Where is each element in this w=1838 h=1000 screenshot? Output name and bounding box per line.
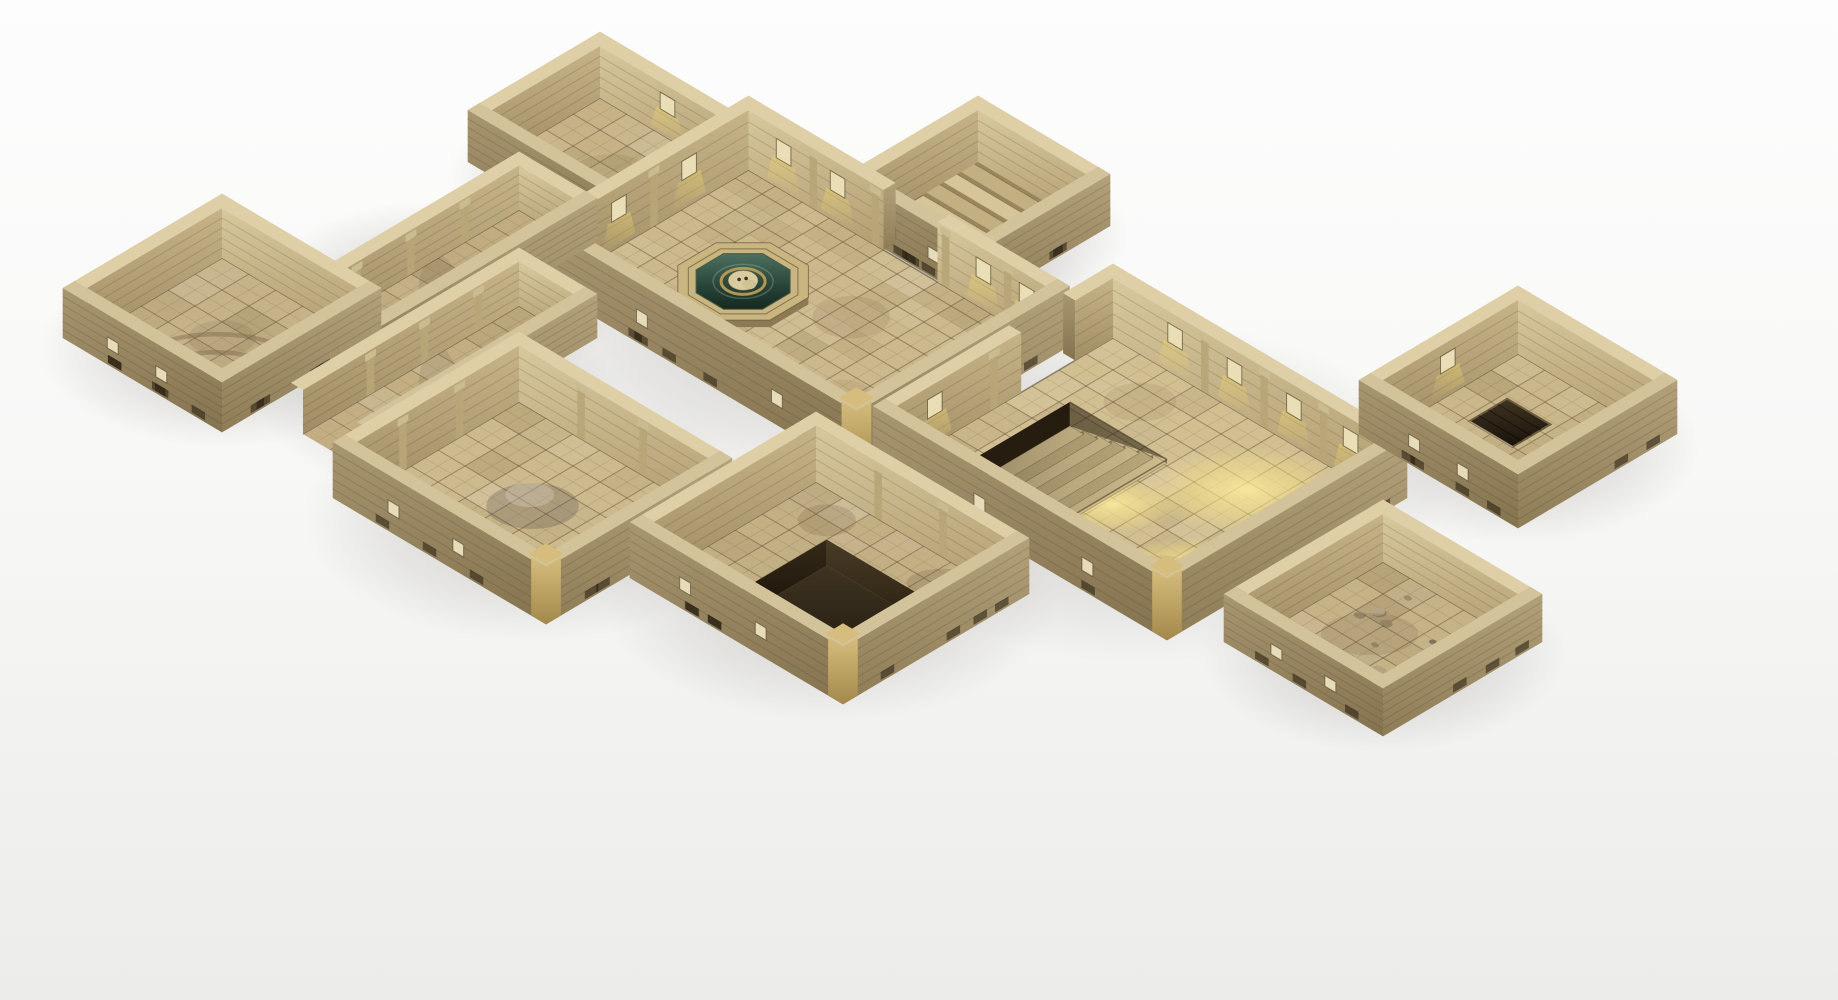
- render-stage: [0, 0, 1838, 1000]
- dungeon-terrain-render: [0, 0, 1838, 1000]
